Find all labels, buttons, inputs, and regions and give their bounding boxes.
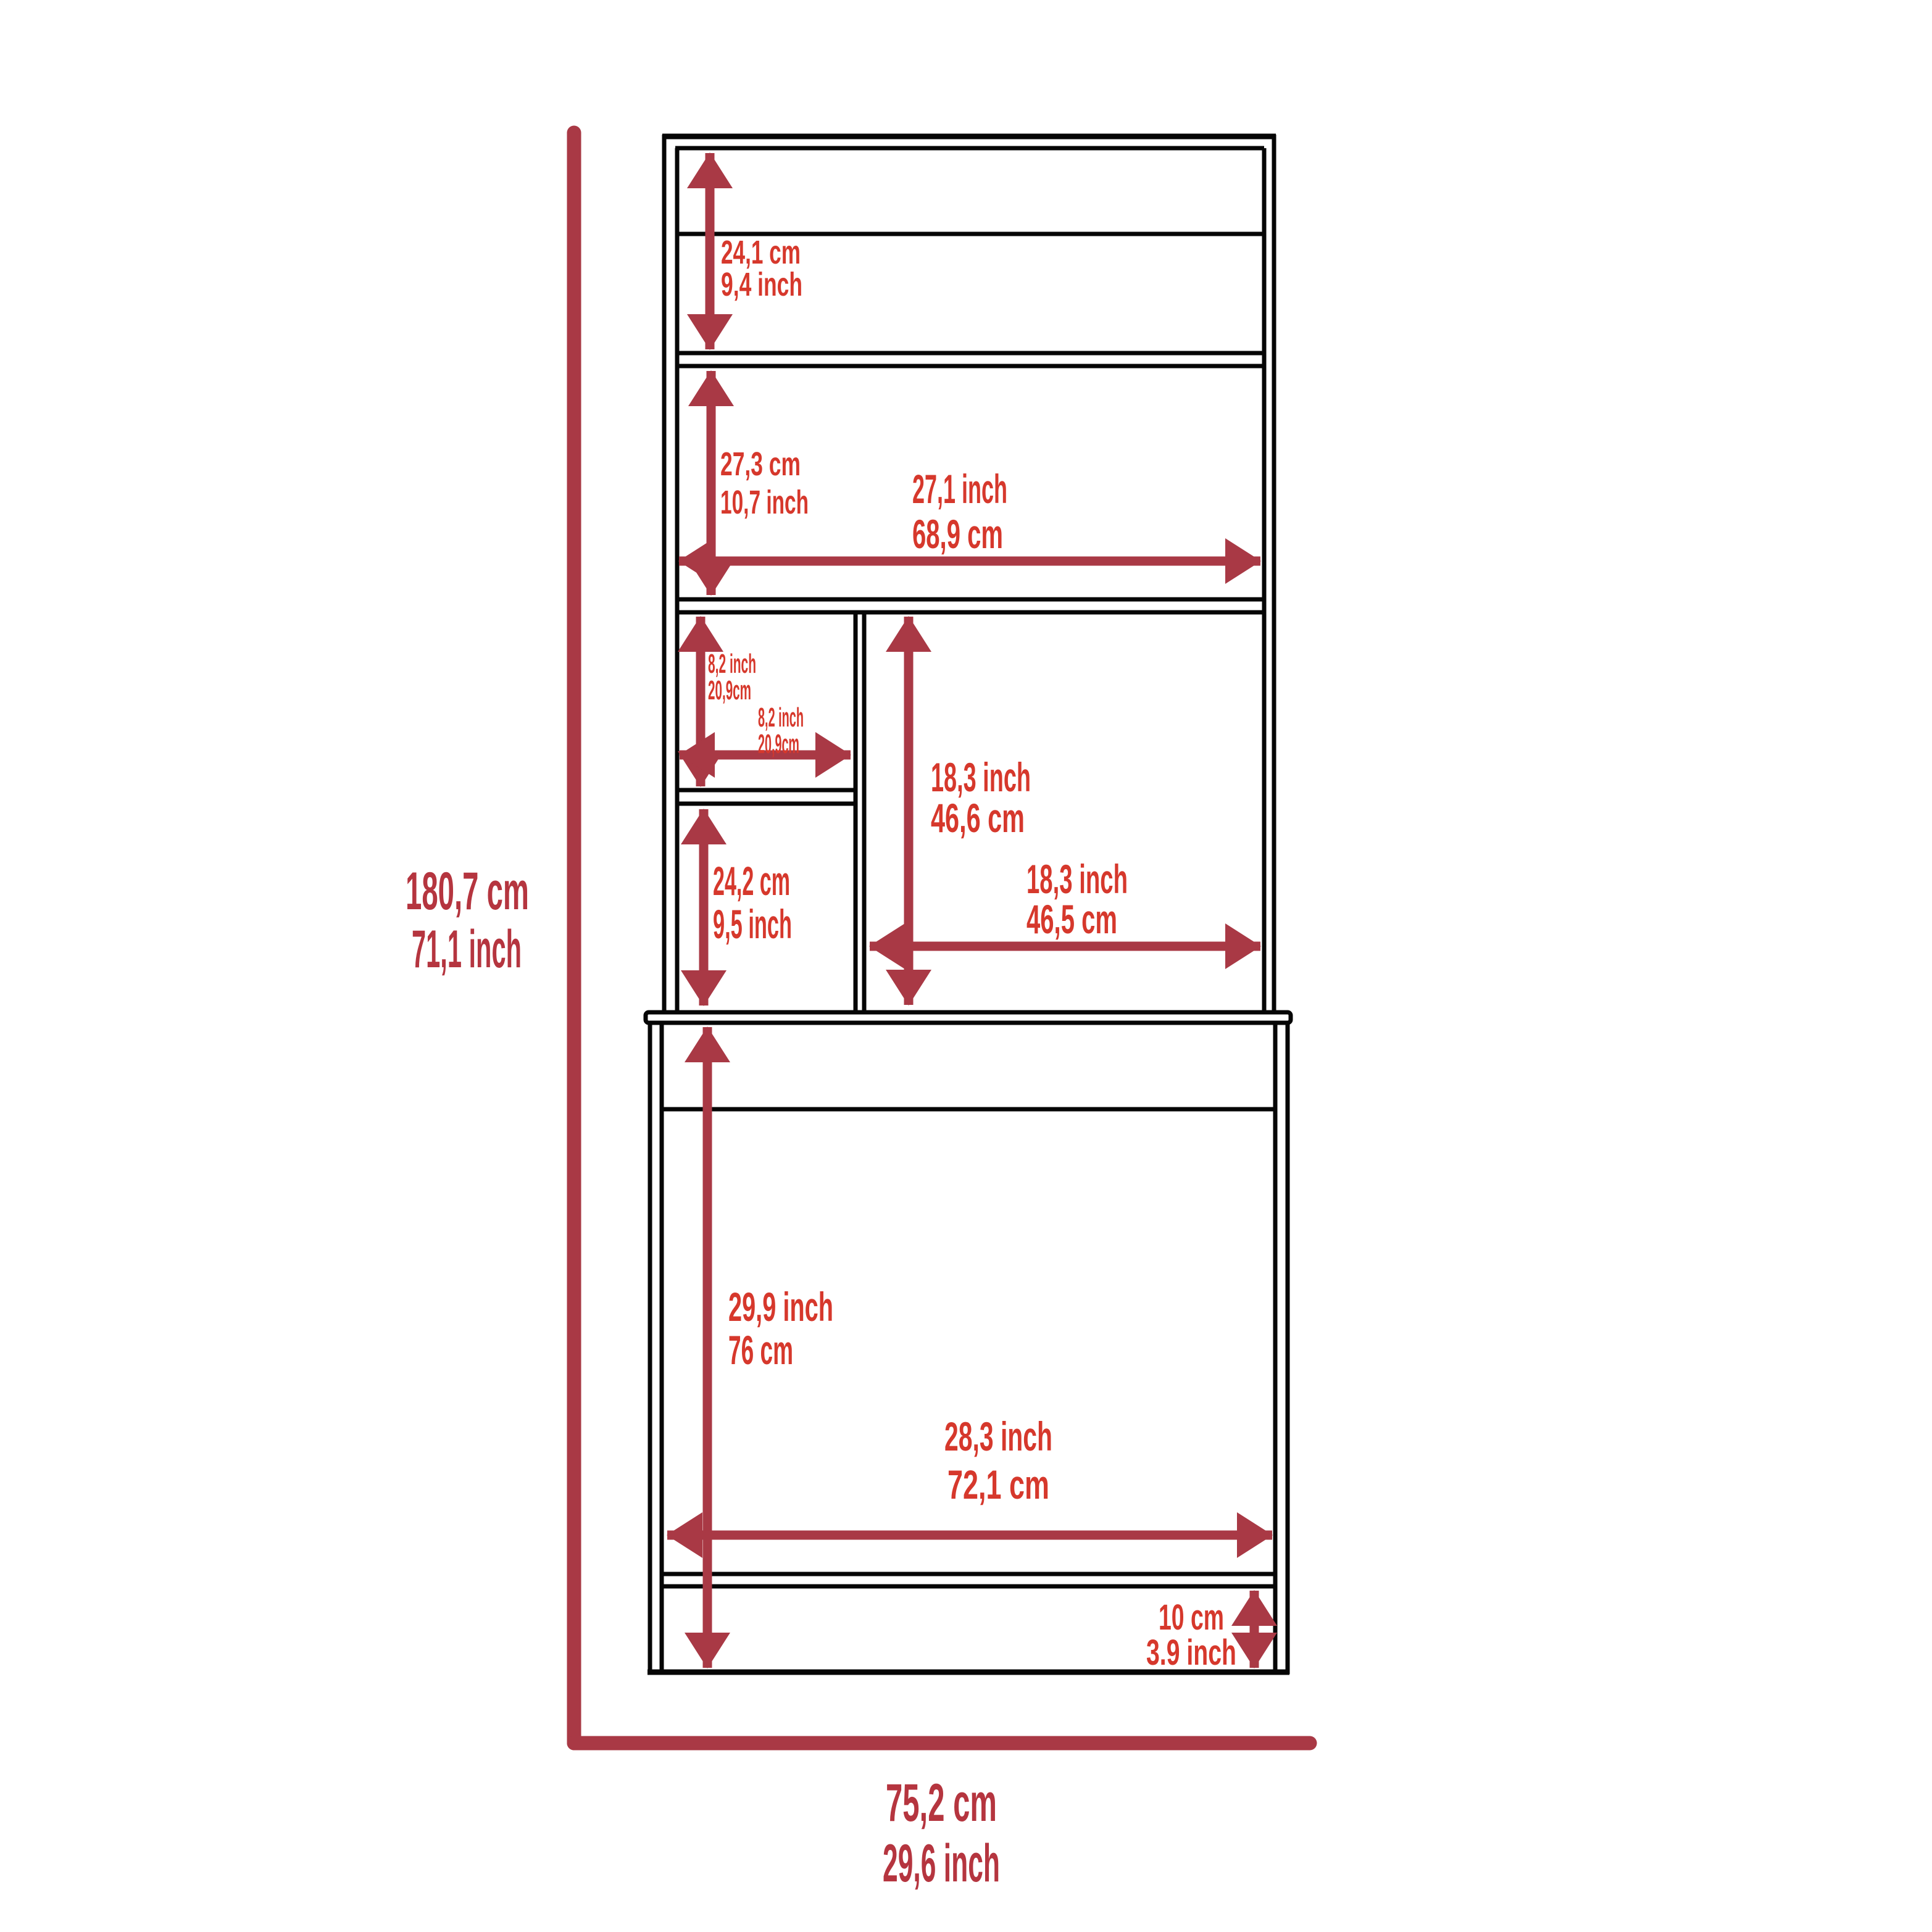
- label-cubby-height-cm: 20,9cm: [708, 675, 751, 706]
- label-cubby-width-cm: 20,9cm: [758, 729, 799, 759]
- label-right-compartment-width-cm: 46,5 cm: [1026, 896, 1117, 942]
- label-overall-width-inch: 29,6 inch: [883, 1834, 1000, 1893]
- label-cubby-height-inch: 8,2 inch: [708, 649, 756, 679]
- label-middle-shelf-height-cm: 27,3 cm: [720, 446, 801, 483]
- label-lower-cubby-height-cm: 24,2 cm: [713, 858, 790, 904]
- label-right-compartment-height-cm: 46,6 cm: [931, 795, 1025, 841]
- label-base-plinth-height-inch: 3.9 inch: [1146, 1633, 1236, 1673]
- furniture-dimension-diagram: 24,1 cm 9,4 inch 27,3 cm 10,7 inch 27,1 …: [0, 0, 1932, 1932]
- label-middle-shelf-height-inch: 10,7 inch: [720, 484, 809, 521]
- overall-dimension-lines: [574, 133, 1310, 1743]
- label-base-cabinet-height-inch: 29,9 inch: [728, 1284, 833, 1330]
- label-top-shelf-height-inch: 9,4 inch: [721, 266, 802, 303]
- diagram-canvas: 24,1 cm 9,4 inch 27,3 cm 10,7 inch 27,1 …: [0, 0, 1932, 1932]
- label-base-interior-width-cm: 72,1 cm: [947, 1462, 1049, 1507]
- label-right-compartment-width-inch: 18,3 inch: [1026, 856, 1128, 902]
- label-hutch-interior-width-cm: 68,9 cm: [912, 511, 1003, 557]
- label-overall-height-cm: 180,7 cm: [406, 862, 529, 921]
- measurement-labels: 24,1 cm 9,4 inch 27,3 cm 10,7 inch 27,1 …: [406, 234, 1236, 1893]
- label-lower-cubby-height-inch: 9,5 inch: [713, 901, 792, 947]
- label-overall-width-cm: 75,2 cm: [886, 1773, 997, 1833]
- label-base-cabinet-height-cm: 76 cm: [728, 1327, 793, 1373]
- label-right-compartment-height-inch: 18,3 inch: [931, 754, 1031, 800]
- label-overall-height-inch: 71,1 inch: [412, 920, 522, 979]
- label-hutch-interior-width-inch: 27,1 inch: [912, 466, 1007, 512]
- label-base-interior-width-inch: 28,3 inch: [944, 1414, 1052, 1459]
- label-cubby-width-inch: 8,2 inch: [758, 702, 804, 733]
- label-base-plinth-height-cm: 10 cm: [1159, 1597, 1224, 1638]
- label-top-shelf-height-cm: 24,1 cm: [721, 234, 801, 271]
